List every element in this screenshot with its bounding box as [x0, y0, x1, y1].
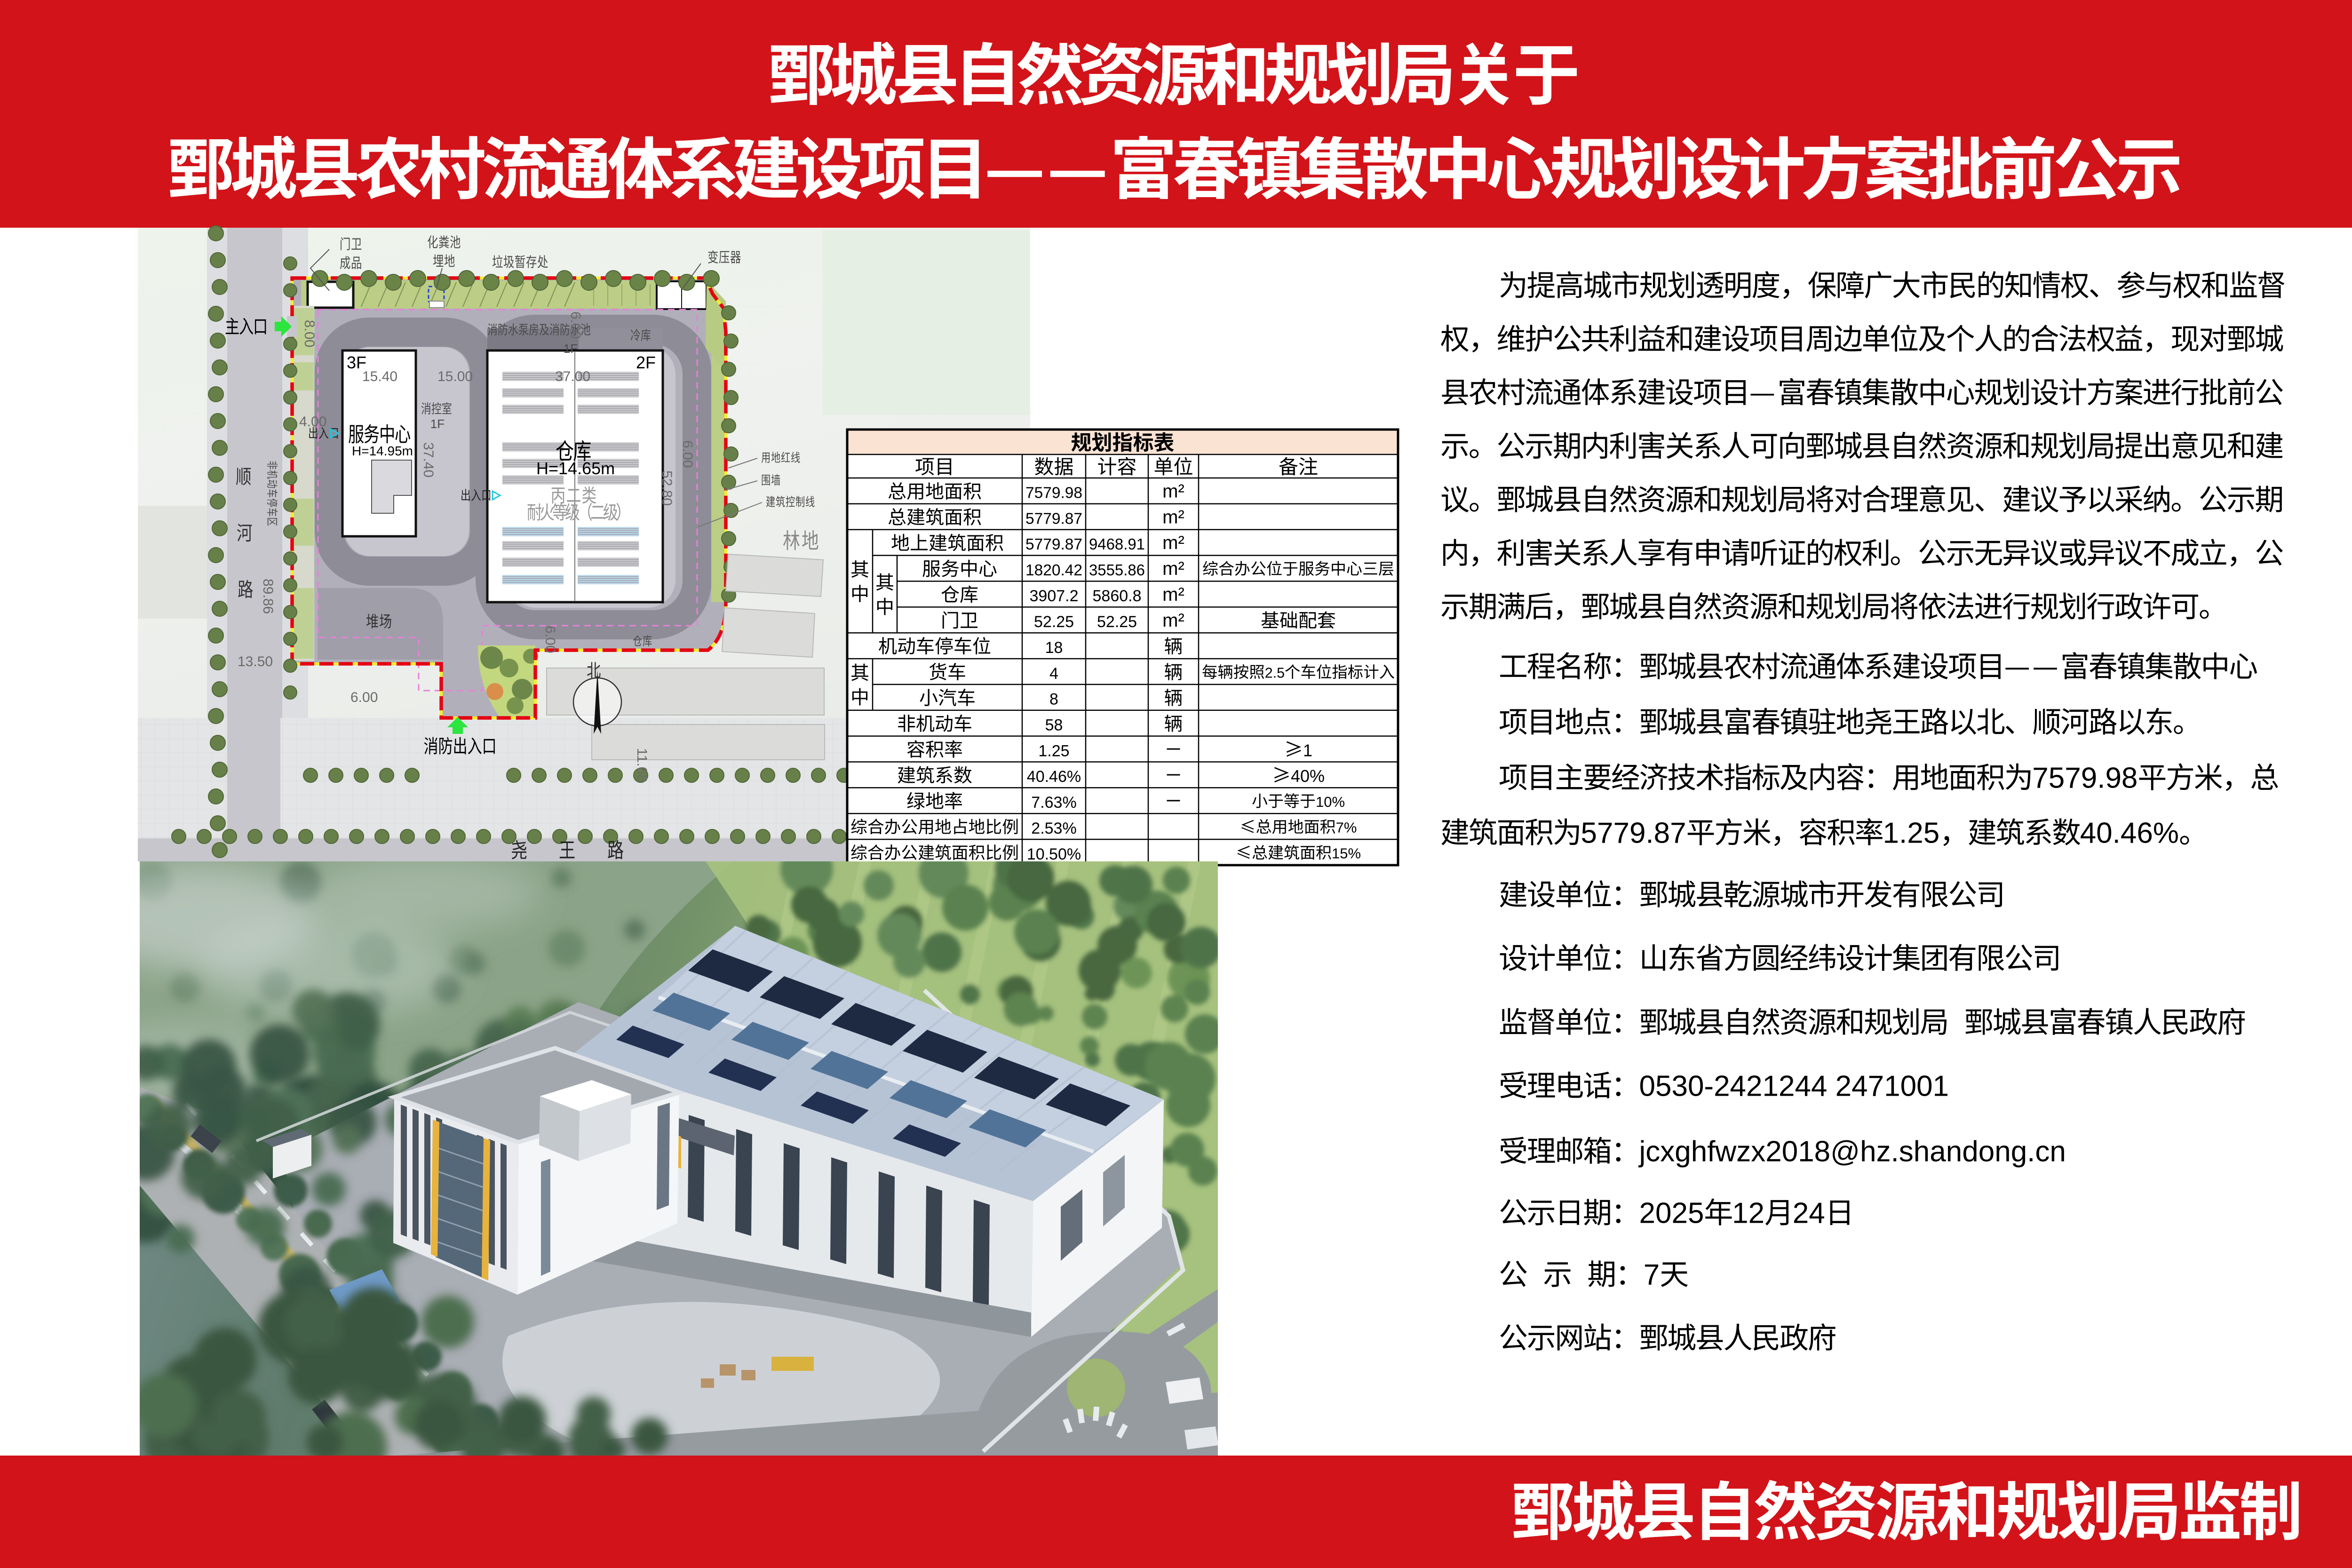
svg-text:7.63%: 7.63% — [1031, 794, 1076, 812]
svg-text:m²: m² — [1162, 584, 1184, 605]
svg-text:5860.8: 5860.8 — [1093, 587, 1142, 605]
svg-text:jcxghfwzx2018@hz.shandong.cn: jcxghfwzx2018@hz.shandong.cn — [1638, 1136, 2066, 1168]
svg-text:58: 58 — [1045, 716, 1063, 734]
svg-text:1F: 1F — [430, 417, 445, 431]
svg-text:1F: 1F — [564, 342, 578, 356]
svg-text:4: 4 — [1049, 665, 1058, 683]
svg-text:15.40: 15.40 — [362, 369, 397, 384]
svg-text:2025: 2025 — [1639, 1197, 1704, 1230]
svg-text:9468.91: 9468.91 — [1089, 535, 1145, 553]
svg-text:5779.87: 5779.87 — [1025, 510, 1082, 527]
svg-text:4.00: 4.00 — [299, 414, 326, 430]
svg-text:37.40: 37.40 — [421, 442, 436, 478]
svg-text:1.25: 1.25 — [1883, 817, 1940, 850]
svg-text:3907.2: 3907.2 — [1030, 587, 1079, 605]
svg-text:15%: 15% — [1332, 845, 1361, 862]
svg-text:18: 18 — [1045, 639, 1063, 657]
svg-text:52.80: 52.80 — [659, 470, 675, 506]
svg-text:6.00: 6.00 — [568, 311, 583, 339]
svg-text:6.00: 6.00 — [680, 440, 695, 468]
svg-text:1820.42: 1820.42 — [1025, 562, 1082, 579]
svg-text:H=14.65m: H=14.65m — [536, 459, 615, 478]
svg-text:1: 1 — [1303, 740, 1312, 760]
svg-text:m²: m² — [1162, 481, 1184, 501]
svg-text:52.25: 52.25 — [1034, 613, 1074, 631]
svg-text:3555.86: 3555.86 — [1089, 561, 1145, 579]
svg-text:7: 7 — [1644, 1259, 1660, 1291]
svg-text:5779.87: 5779.87 — [1581, 817, 1686, 850]
svg-text:40.46%: 40.46% — [2080, 817, 2179, 850]
svg-text:2.5: 2.5 — [1265, 665, 1285, 681]
svg-text:7579.98: 7579.98 — [1025, 485, 1082, 502]
svg-text:H=14.95m: H=14.95m — [352, 444, 413, 458]
svg-text:m²: m² — [1162, 558, 1184, 579]
svg-text:m²: m² — [1162, 533, 1184, 553]
svg-text:10.50%: 10.50% — [1027, 845, 1081, 863]
svg-text:8: 8 — [1049, 691, 1058, 708]
svg-text:7579.98: 7579.98 — [2032, 762, 2137, 795]
svg-text:15.00: 15.00 — [437, 369, 473, 384]
svg-text:37.00: 37.00 — [555, 369, 590, 384]
svg-text:2F: 2F — [636, 353, 656, 372]
svg-text:40.46%: 40.46% — [1027, 768, 1081, 786]
svg-text:52.25: 52.25 — [1097, 613, 1137, 631]
svg-text:m²: m² — [1162, 610, 1184, 631]
svg-text:1.25: 1.25 — [1038, 742, 1069, 760]
svg-text:2.53%: 2.53% — [1031, 820, 1076, 837]
svg-text:0530-2421244 2471001: 0530-2421244 2471001 — [1639, 1070, 1949, 1103]
svg-text:5779.87: 5779.87 — [1025, 536, 1082, 553]
svg-text:40%: 40% — [1291, 766, 1325, 786]
svg-text:24: 24 — [1793, 1197, 1825, 1230]
svg-text:7%: 7% — [1336, 820, 1357, 836]
svg-text:m²: m² — [1162, 507, 1184, 527]
svg-text:11.68: 11.68 — [634, 748, 650, 782]
svg-text:8.00: 8.00 — [302, 320, 317, 347]
svg-text:12: 12 — [1732, 1197, 1764, 1230]
svg-text:6.00: 6.00 — [350, 690, 378, 705]
svg-text:89.86: 89.86 — [260, 579, 276, 614]
svg-text:13.50: 13.50 — [238, 654, 273, 669]
svg-text:6.00: 6.00 — [542, 626, 558, 653]
svg-text:10%: 10% — [1316, 794, 1345, 810]
